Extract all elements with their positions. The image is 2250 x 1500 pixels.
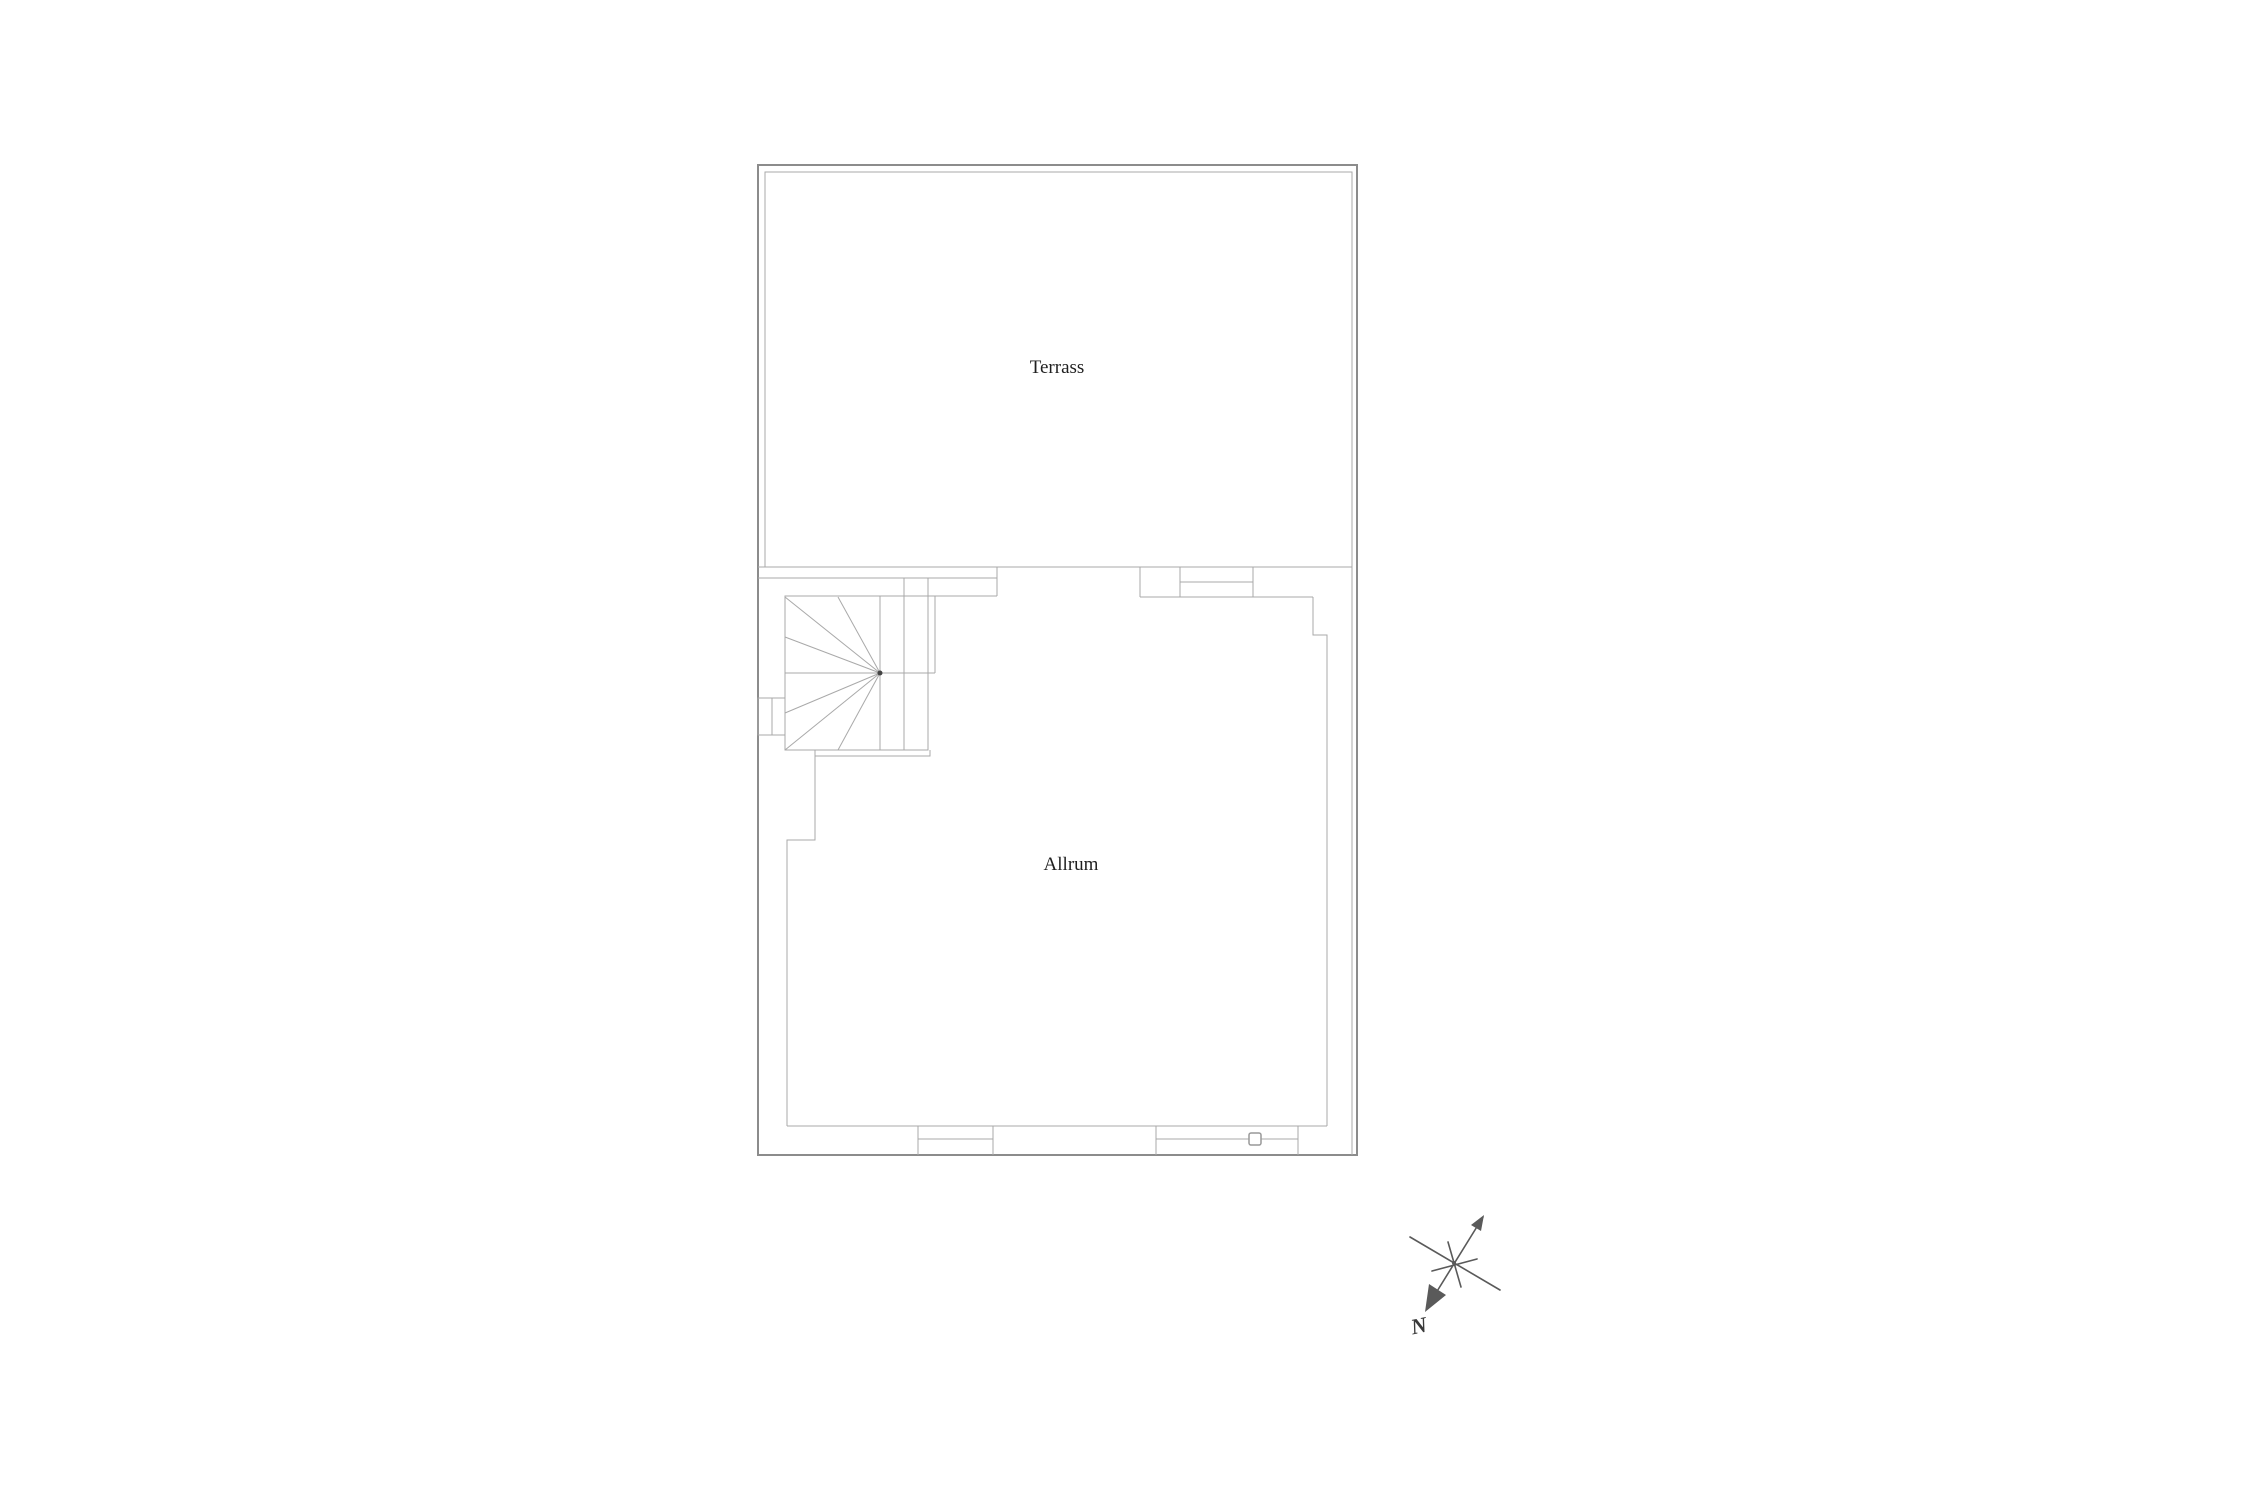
stair-winder-line: [785, 597, 880, 673]
stair-winder-line: [838, 673, 880, 750]
outer-walls: [758, 165, 1357, 1155]
floorplan-canvas: Terrass Allrum N: [0, 0, 2250, 1500]
compass-center-dot: [1452, 1261, 1456, 1265]
stair-newel-post: [878, 671, 883, 676]
terrace-dividing-wall: [758, 567, 1352, 597]
outer-boundary: [758, 165, 1357, 1155]
stair-winder-line: [785, 673, 880, 713]
inner-wall-face: [765, 172, 1352, 1155]
bottom-openings: [918, 1126, 1298, 1155]
door-handle-symbol: [1249, 1133, 1261, 1145]
compass-rose: N: [1408, 1215, 1500, 1340]
compass-north-arrowhead: [1425, 1284, 1446, 1312]
room-label-allrum: Allrum: [1044, 854, 1099, 875]
floorplan-drawing: Terrass Allrum N: [0, 0, 2250, 1500]
staircase: [758, 578, 935, 756]
room-label-terrass: Terrass: [1030, 357, 1085, 378]
stair-landing-strip: [815, 750, 930, 756]
allrum-left-wall: [787, 756, 815, 1126]
compass-north-label: N: [1408, 1311, 1431, 1339]
stair-winder-line: [785, 673, 880, 750]
stair-winder-line: [785, 637, 880, 673]
compass-small-arrowhead: [1471, 1215, 1484, 1231]
allrum-right-wall: [1313, 597, 1327, 1126]
stair-winder-line: [838, 597, 880, 673]
